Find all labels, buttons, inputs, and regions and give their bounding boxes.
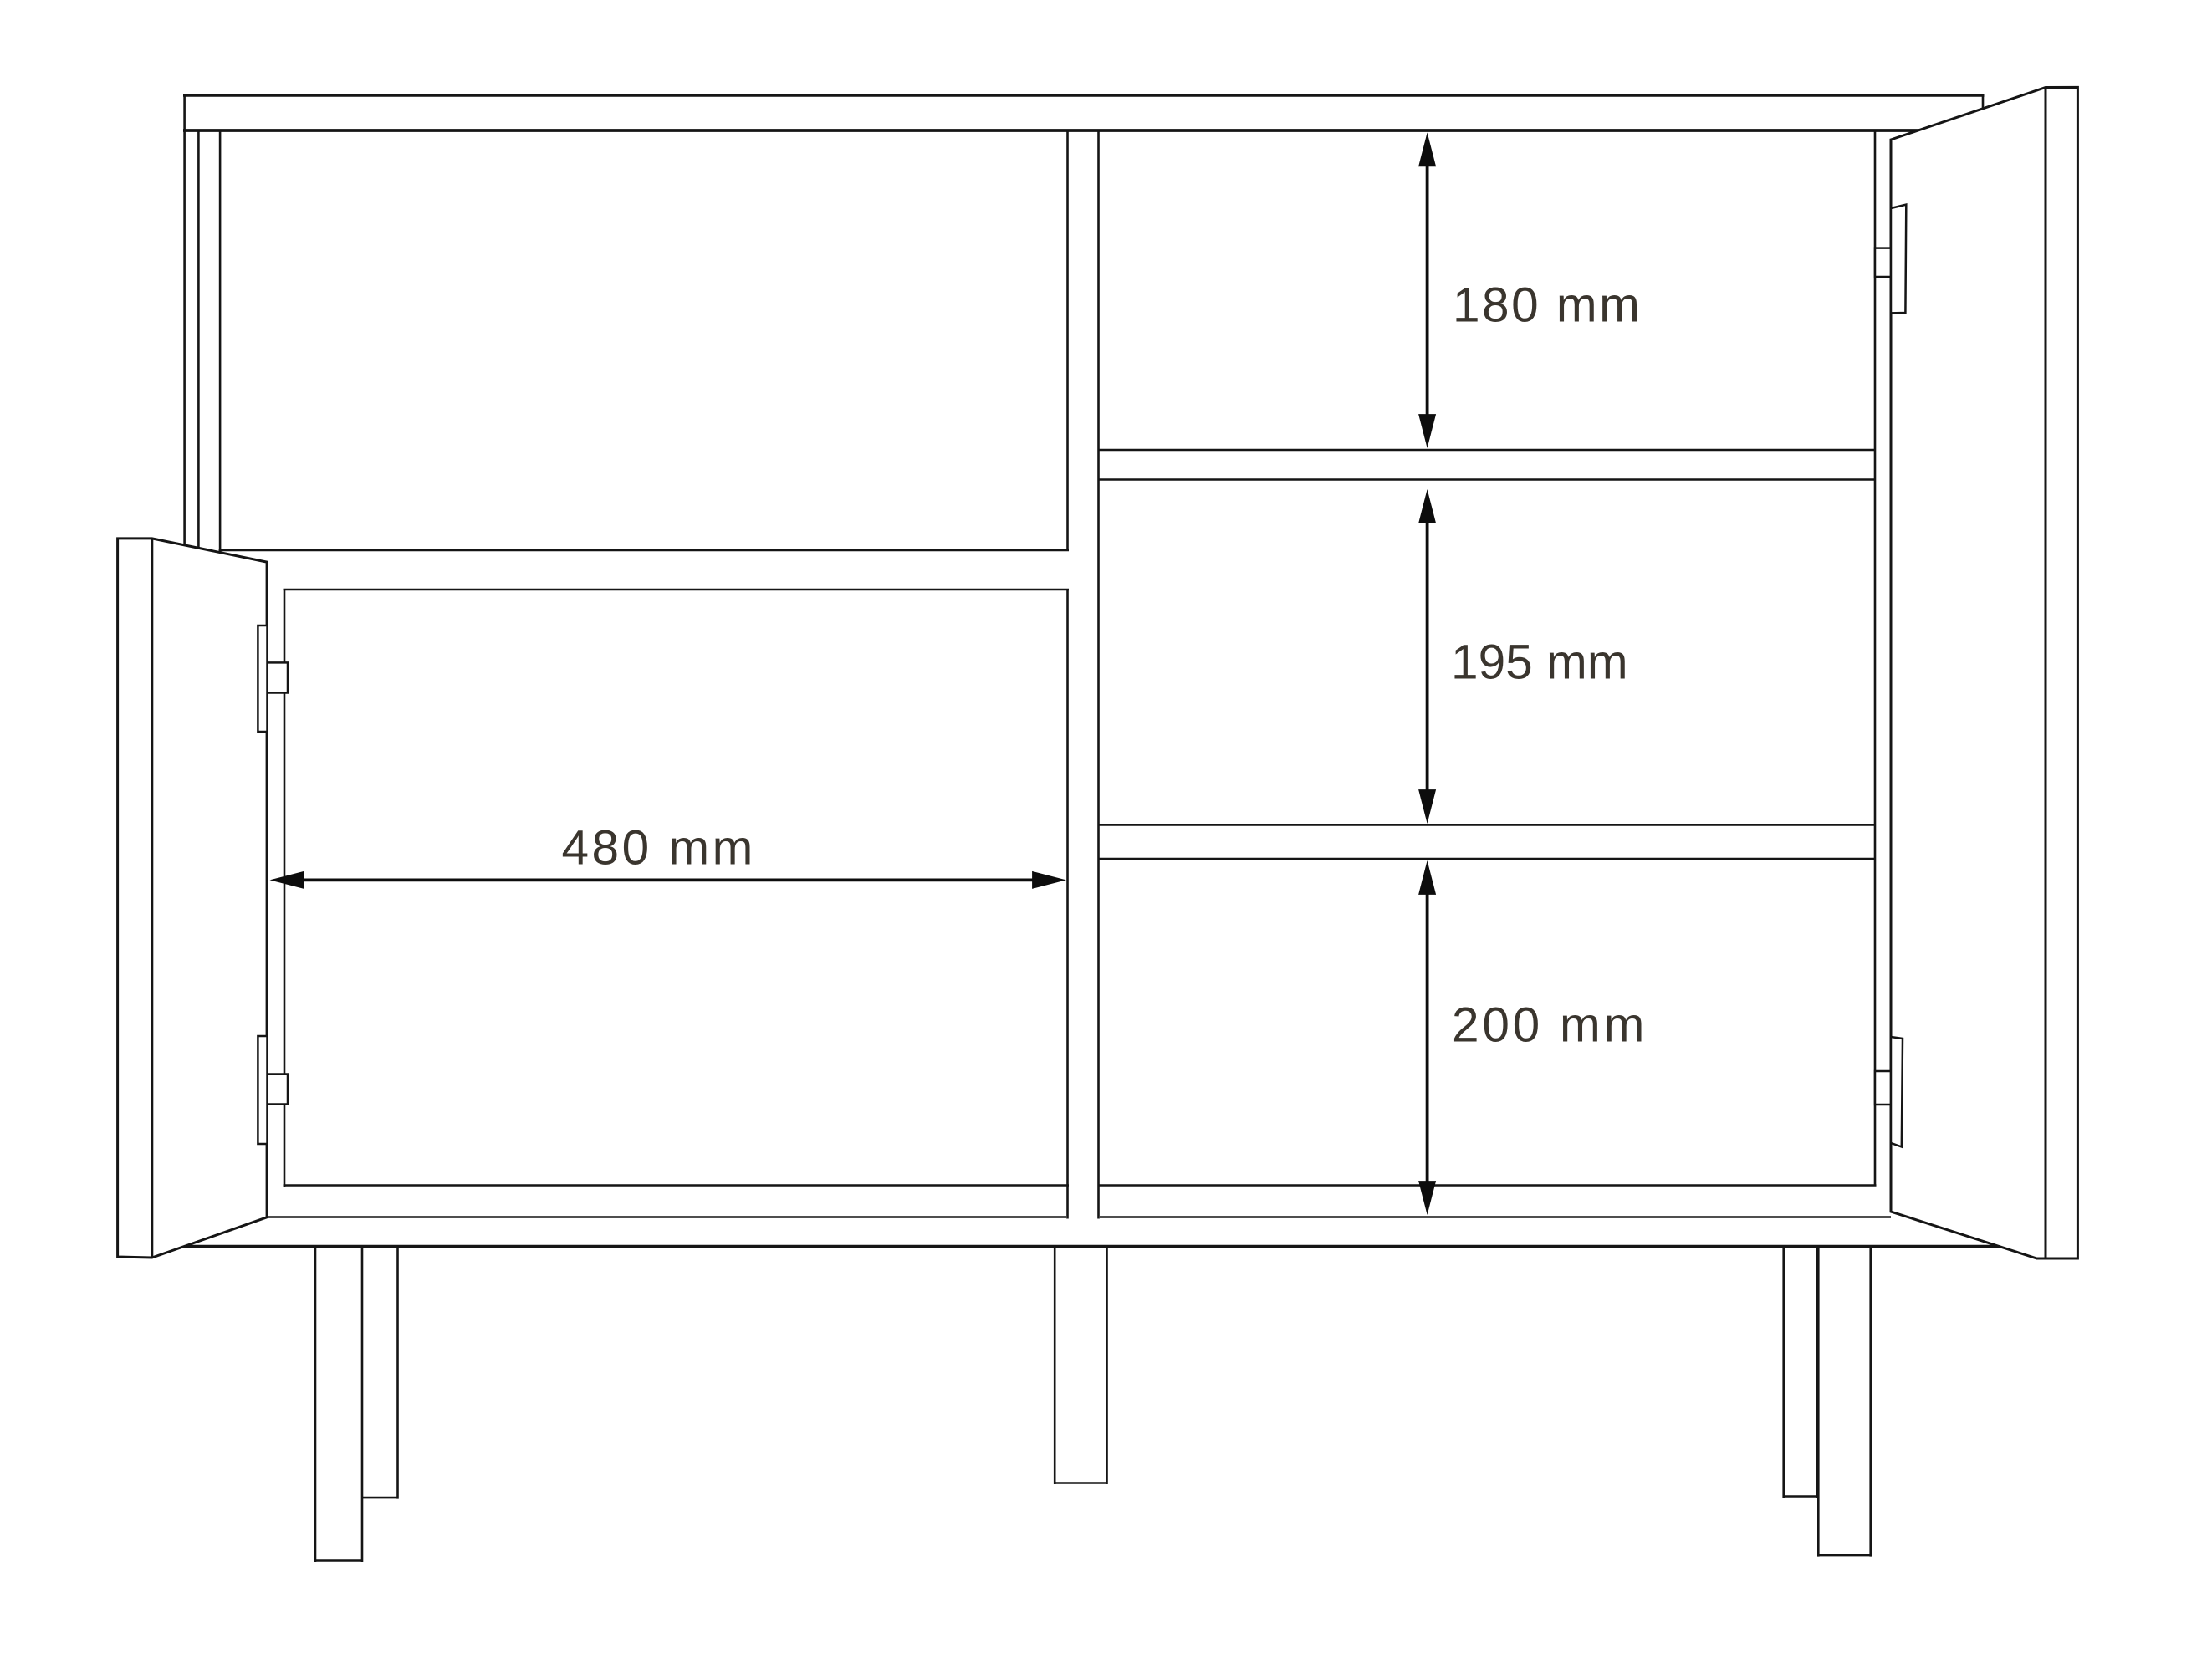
- svg-text:480 mm: 480 mm: [562, 821, 756, 875]
- svg-text:180 mm: 180 mm: [1453, 278, 1642, 333]
- svg-text:195 mm: 195 mm: [1451, 636, 1628, 690]
- svg-text:200 mm: 200 mm: [1452, 998, 1648, 1053]
